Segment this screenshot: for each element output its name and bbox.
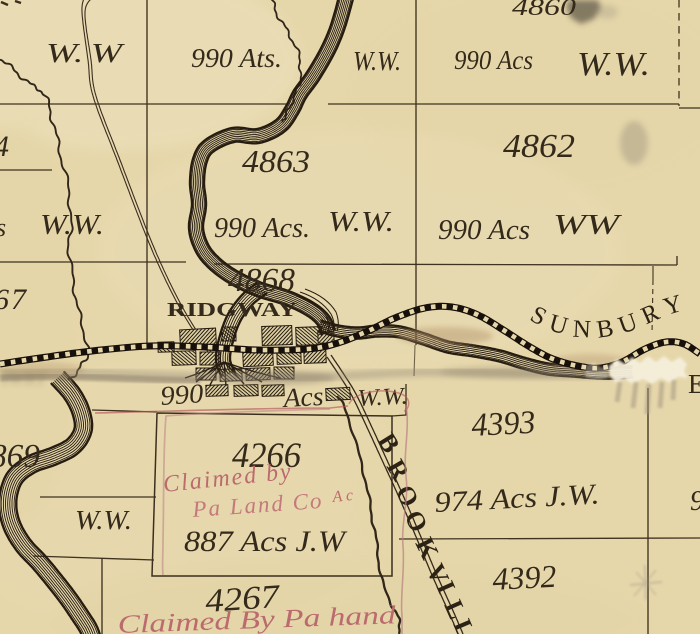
- svg-text:RIDGWAY: RIDGWAY: [167, 299, 298, 321]
- svg-text:4862: 4862: [503, 128, 575, 165]
- svg-text:W.W.: W.W.: [75, 505, 132, 535]
- svg-text:4: 4: [0, 130, 9, 163]
- svg-text:4868: 4868: [228, 262, 295, 299]
- svg-text:IWRT: IWRT: [1, 369, 48, 390]
- svg-text:97: 97: [690, 486, 700, 517]
- svg-text:W.W.: W.W.: [577, 46, 650, 83]
- svg-text:W.W.: W.W.: [357, 383, 408, 412]
- svg-text:990 Acs: 990 Acs: [438, 215, 530, 246]
- svg-text:990 Acs.: 990 Acs.: [214, 213, 310, 244]
- svg-text:A c: A c: [331, 487, 354, 506]
- svg-text:4393: 4393: [471, 405, 537, 444]
- svg-text:s: s: [0, 213, 6, 242]
- svg-text:4860: 4860: [512, 0, 576, 21]
- svg-text:W.W.: W.W.: [40, 210, 104, 241]
- svg-text:4392: 4392: [491, 558, 557, 597]
- svg-text:E: E: [688, 369, 700, 399]
- svg-text:990: 990: [159, 378, 205, 411]
- svg-text:990 Ats.: 990 Ats.: [191, 43, 282, 73]
- svg-text:67: 67: [0, 283, 28, 316]
- svg-text:W.W.: W.W.: [353, 46, 401, 76]
- svg-text:887 Acs J.W: 887 Acs J.W: [184, 525, 348, 558]
- svg-text:4863: 4863: [242, 143, 310, 179]
- svg-text:WW: WW: [553, 210, 623, 241]
- svg-text:990 Acs: 990 Acs: [454, 45, 533, 75]
- svg-text:W.W.: W.W.: [328, 207, 394, 238]
- svg-text:869: 869: [0, 438, 40, 475]
- svg-text:W. W: W. W: [46, 38, 125, 68]
